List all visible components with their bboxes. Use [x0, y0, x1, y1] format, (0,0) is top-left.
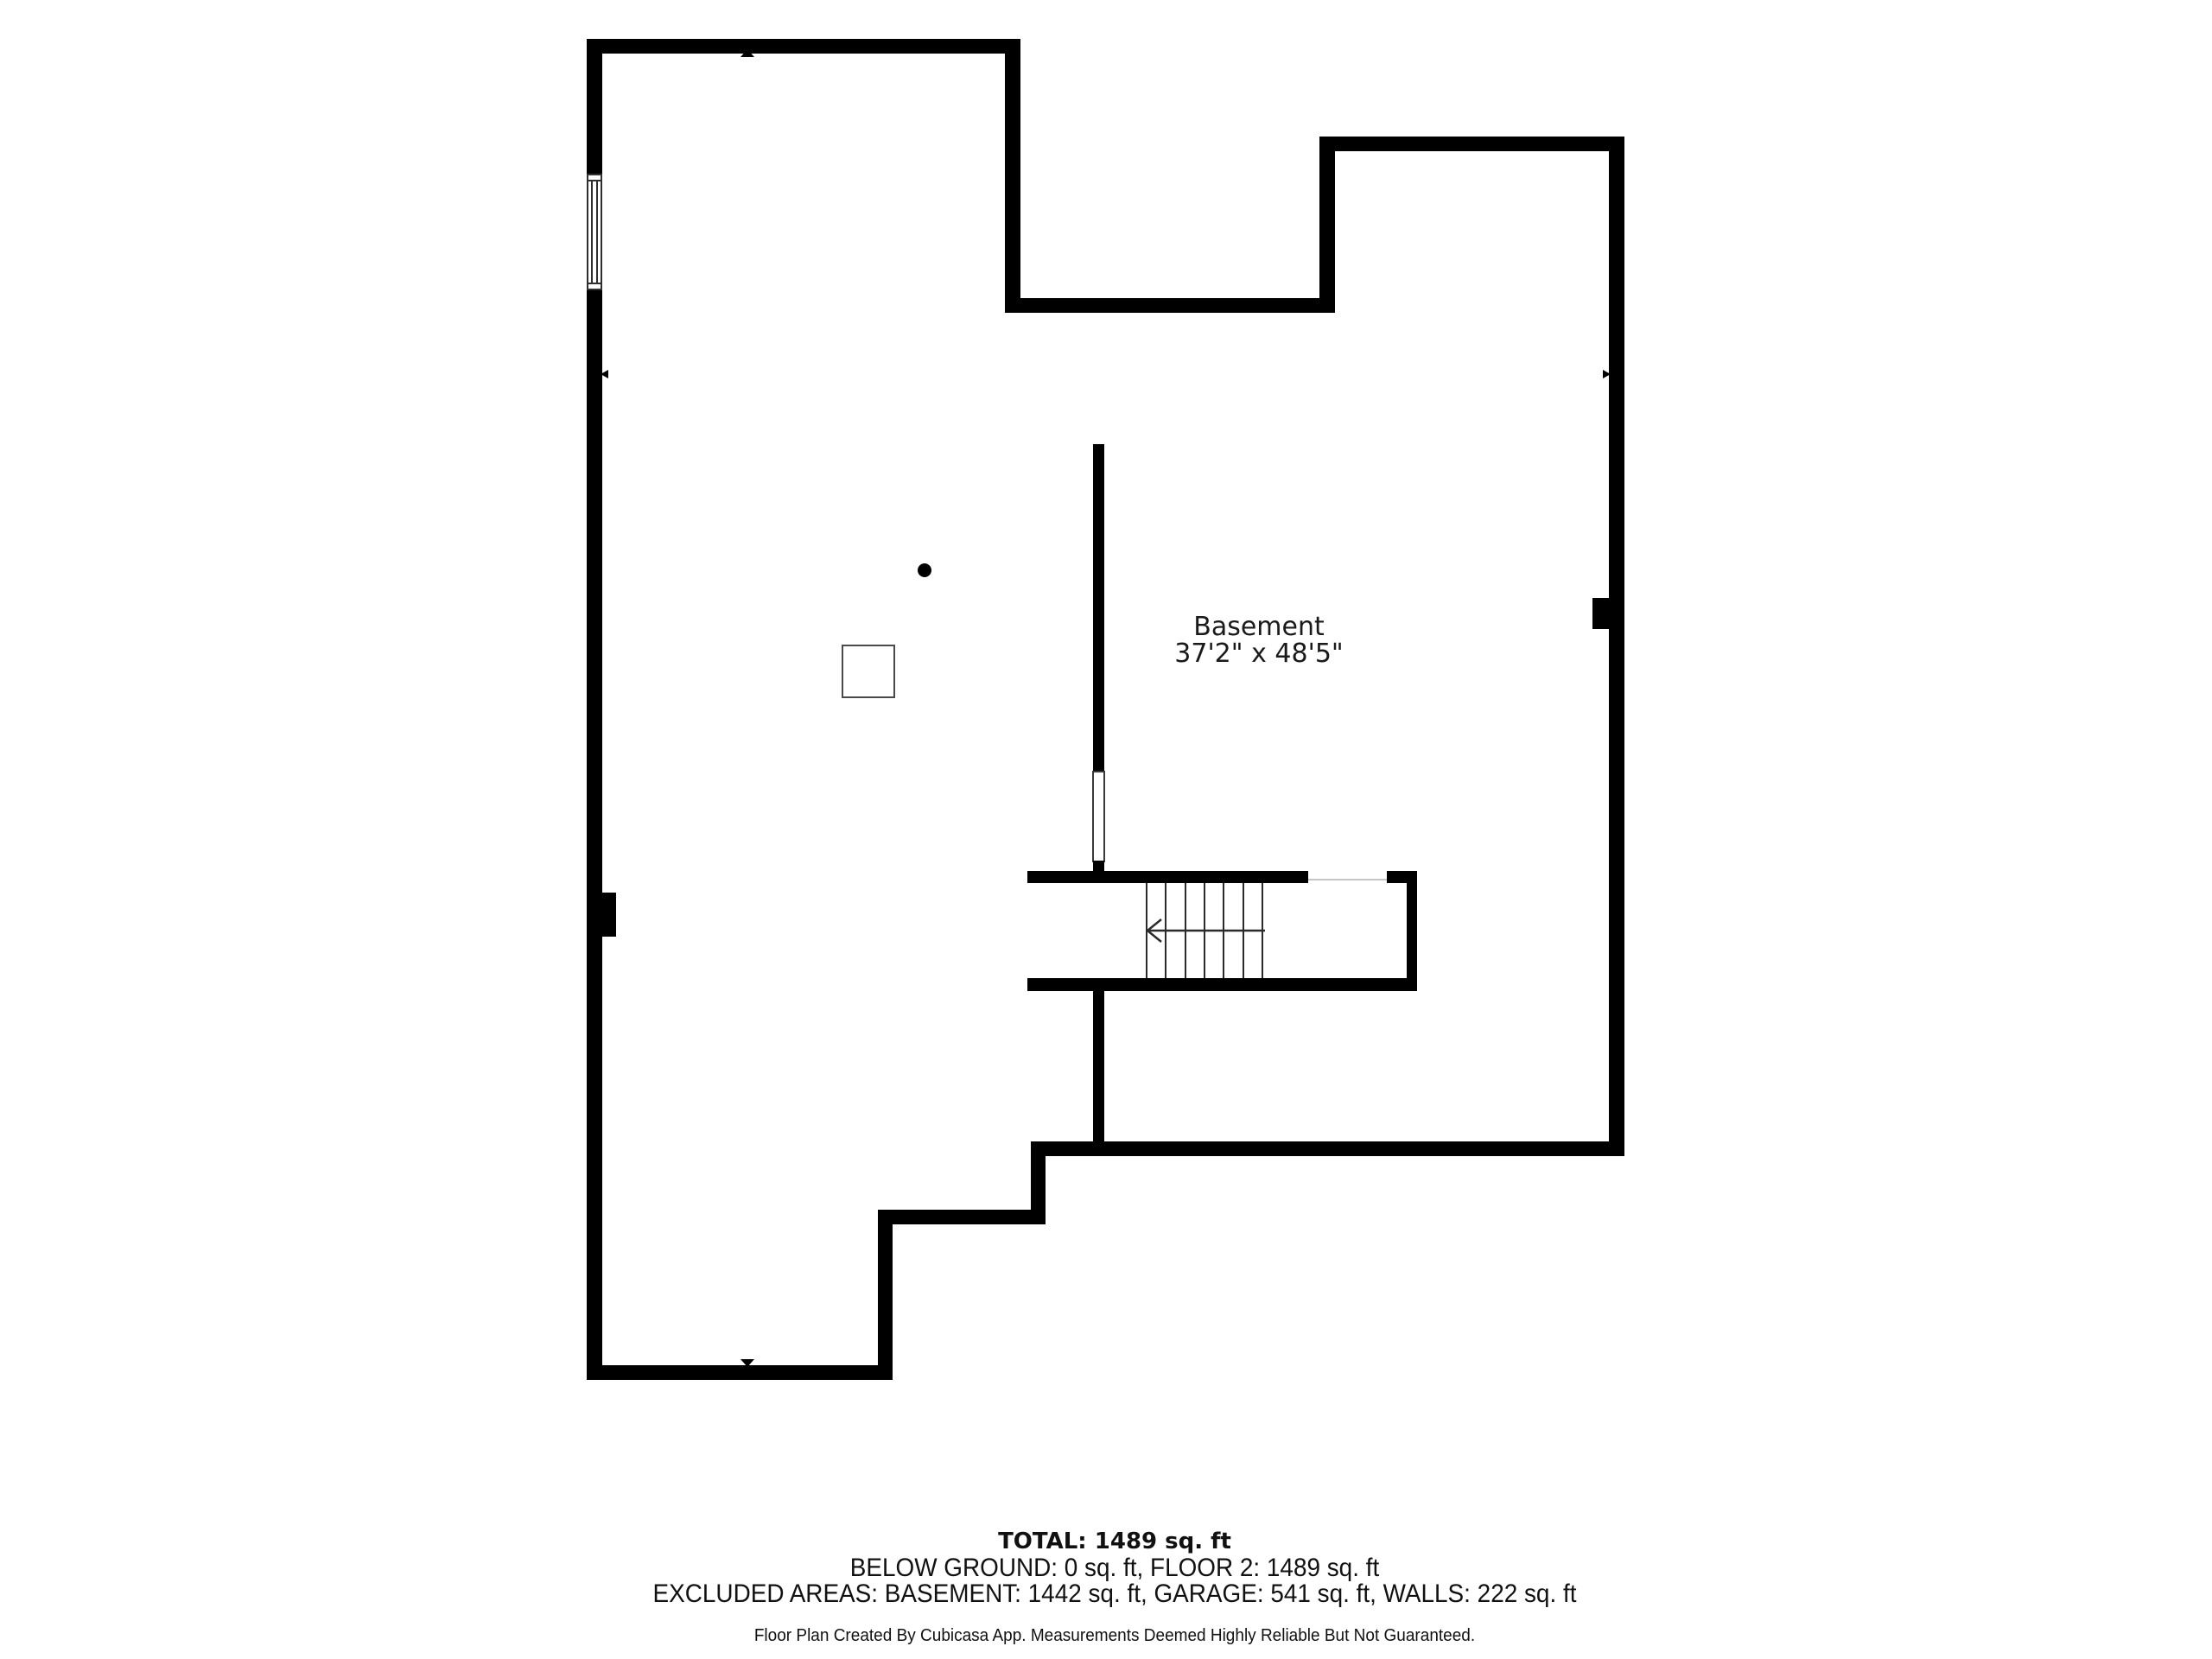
door-jamb-right: [1592, 598, 1611, 629]
wall-marker-down-icon: [741, 1359, 754, 1367]
total-area-text: TOTAL: 1489 sq. ft: [21, 1529, 2209, 1555]
disclaimer-text: Floor Plan Created By Cubicasa App. Meas…: [75, 1626, 2153, 1645]
room-dimensions: 37'2" x 48'5": [1129, 640, 1389, 667]
wall-stair-bottom: [1027, 978, 1417, 991]
point-marker-dot: [918, 563, 931, 577]
wall-notch-right-vertical: [1319, 137, 1335, 313]
window-pane-line: [596, 181, 598, 283]
wall-mid-bottom: [878, 1210, 1046, 1224]
wall-stair-top: [1027, 871, 1308, 883]
wall-top-left-section: [587, 39, 1020, 54]
window-pane-line: [591, 181, 593, 283]
room-name: Basement: [1129, 613, 1389, 640]
summary-footer: TOTAL: 1489 sq. ft BELOW GROUND: 0 sq. f…: [21, 1529, 2209, 1645]
stair-landing-opening-line: [1308, 879, 1389, 880]
wall-step-left-vertical: [878, 1210, 893, 1380]
window-icon: [587, 174, 602, 290]
wall-top-right-section: [1319, 137, 1624, 151]
wall-marker-left-icon: [601, 370, 608, 378]
wall-bottom-left-section: [587, 1365, 893, 1380]
wall-notch-left-vertical: [1005, 39, 1020, 313]
wall-marker-up-icon: [741, 49, 754, 57]
wall-right: [1609, 137, 1624, 1156]
interior-opening-marker: [1092, 771, 1105, 862]
floor-plan-canvas: Basement 37'2" x 48'5" TOTAL: 1489 sq. f…: [0, 0, 2212, 1659]
wall-interior-lower-vertical: [1093, 991, 1104, 1143]
stair-direction-arrow-icon: [1139, 916, 1270, 945]
wall-stair-corner-right: [1407, 871, 1417, 991]
area-breakdown-text: BELOW GROUND: 0 sq. ft, FLOOR 2: 1489 sq…: [98, 1555, 2133, 1581]
door-jamb-left: [601, 893, 616, 937]
room-label: Basement 37'2" x 48'5": [1129, 613, 1389, 667]
column-square: [842, 645, 895, 698]
wall-interior-upper-vertical: [1093, 444, 1104, 771]
wall-marker-right-icon: [1603, 370, 1611, 378]
wall-notch-bottom: [1005, 298, 1335, 313]
excluded-areas-text: EXCLUDED AREAS: BASEMENT: 1442 sq. ft, G…: [98, 1581, 2133, 1607]
wall-bottom-right: [1031, 1141, 1624, 1156]
